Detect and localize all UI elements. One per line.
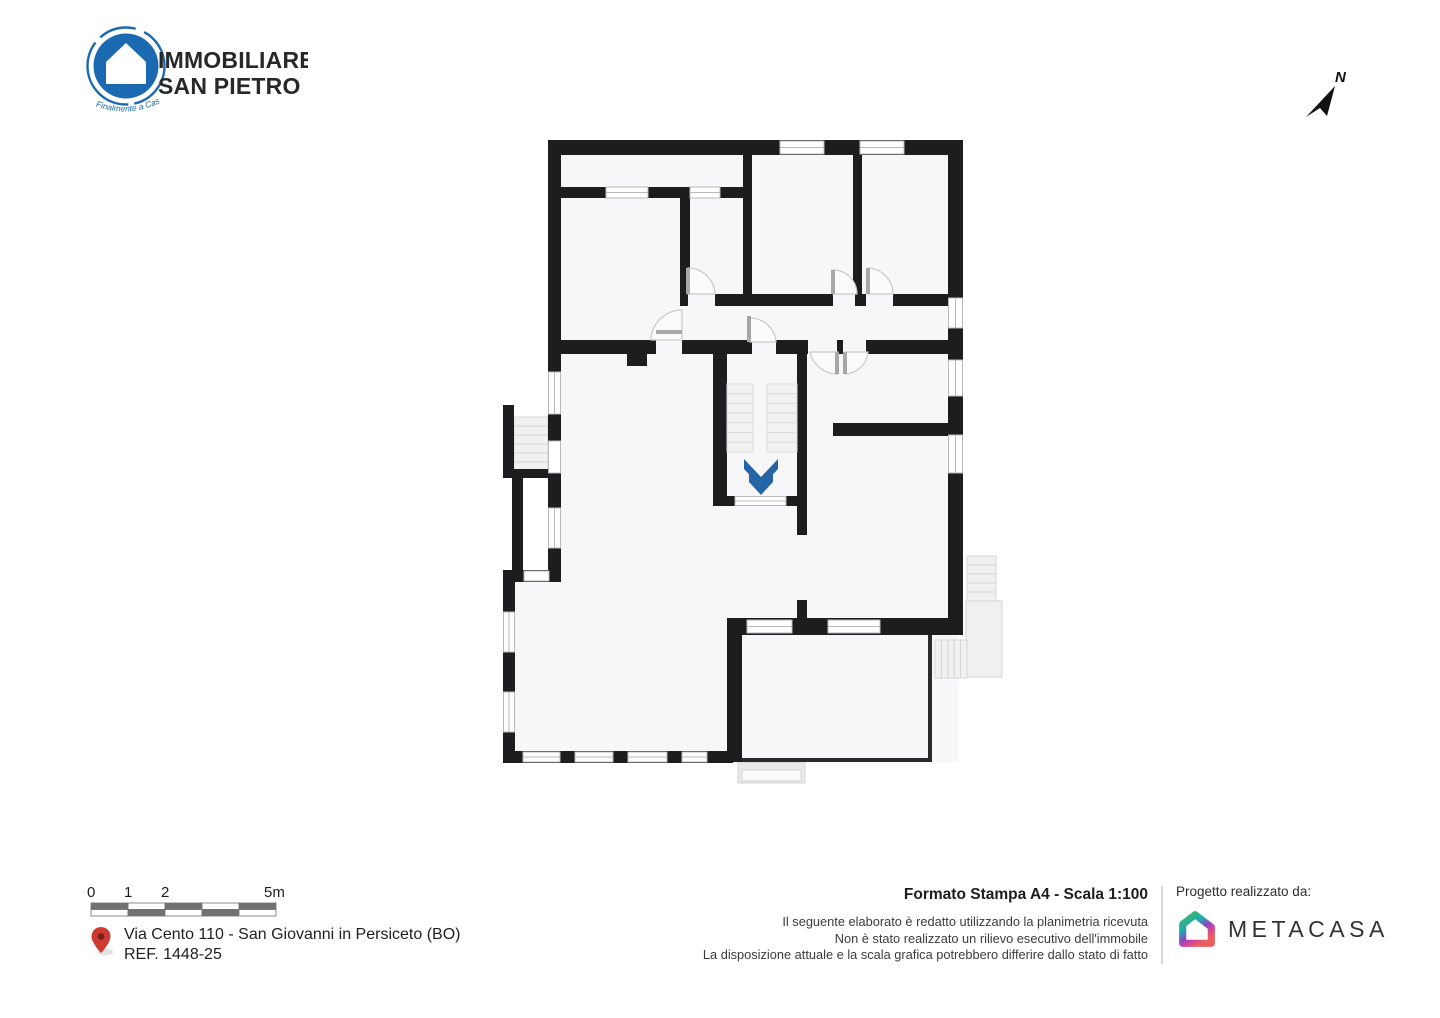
metacasa-wordmark: METACASA	[1228, 916, 1389, 943]
floorplan-page: Finalmente a Casa IMMOBILIARE SAN PIETRO…	[0, 0, 1440, 1018]
metacasa-logo-icon	[1176, 908, 1218, 950]
scale-label-5m: 5m	[264, 884, 285, 901]
scale-bar-segments	[91, 903, 276, 916]
scale-bar: 0 1 2 5m	[86, 884, 316, 926]
footer-divider	[1161, 886, 1163, 964]
print-format-title: Formato Stampa A4 - Scala 1:100	[703, 886, 1148, 904]
print-info: Formato Stampa A4 - Scala 1:100 Il segue…	[703, 886, 1148, 964]
scale-label-2: 2	[161, 884, 169, 901]
exterior-stairs-left	[514, 417, 548, 471]
disclaimer-line-1: Il seguente elaborato è redatto utilizza…	[703, 914, 1148, 931]
entrance-porch	[738, 762, 805, 783]
floor-plan	[0, 0, 1440, 1018]
scale-label-0: 0	[87, 884, 95, 901]
reference-number: REF. 1448-25	[124, 945, 460, 965]
scale-label-1: 1	[124, 884, 132, 901]
disclaimer-line-3: La disposizione attuale e la scala grafi…	[703, 947, 1148, 964]
credits-block: Progetto realizzato da: METACASA	[1176, 884, 1389, 950]
address-line: Via Cento 110 - San Giovanni in Persicet…	[124, 925, 460, 945]
address-block: Via Cento 110 - San Giovanni in Persicet…	[90, 925, 460, 964]
disclaimer-line-2: Non è stato realizzato un rilievo esecut…	[703, 931, 1148, 948]
credits-label: Progetto realizzato da:	[1176, 884, 1389, 899]
location-pin-icon	[90, 925, 114, 959]
